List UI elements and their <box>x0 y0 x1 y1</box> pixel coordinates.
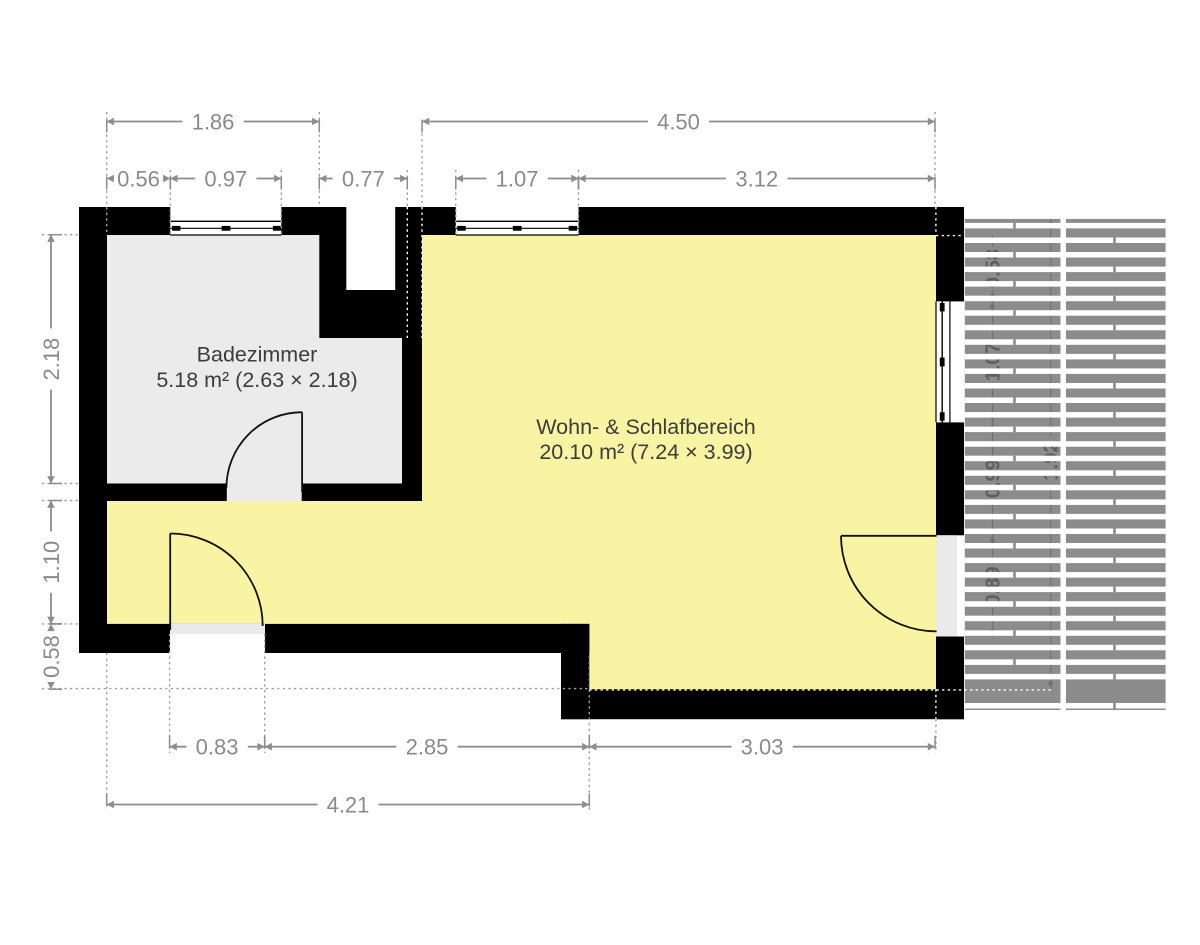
svg-text:Wohn- & Schlafbereich: Wohn- & Schlafbereich <box>536 415 756 439</box>
svg-text:0.77: 0.77 <box>342 167 385 192</box>
svg-text:3.03: 3.03 <box>741 735 784 760</box>
svg-text:0.97: 0.97 <box>204 167 247 192</box>
svg-text:5.18 m² (2.63 × 2.18): 5.18 m² (2.63 × 2.18) <box>156 368 357 392</box>
svg-text:0.99: 0.99 <box>983 459 1005 498</box>
svg-text:2.85: 2.85 <box>406 735 449 760</box>
svg-text:0.58: 0.58 <box>39 635 64 678</box>
svg-text:0.56: 0.56 <box>117 167 160 192</box>
svg-text:Badezimmer: Badezimmer <box>197 343 318 367</box>
svg-text:0.83: 0.83 <box>196 735 239 760</box>
svg-text:1.07: 1.07 <box>496 167 539 192</box>
svg-text:2.18: 2.18 <box>39 338 64 381</box>
svg-text:4.21: 4.21 <box>327 793 370 818</box>
svg-text:1.10: 1.10 <box>39 541 64 584</box>
svg-text:20.10 m² (7.24 × 3.99): 20.10 m² (7.24 × 3.99) <box>539 440 752 464</box>
svg-text:3.12: 3.12 <box>735 167 778 192</box>
svg-text:4.50: 4.50 <box>657 110 700 135</box>
svg-text:1.07: 1.07 <box>983 342 1005 381</box>
svg-text:1.86: 1.86 <box>192 110 235 135</box>
